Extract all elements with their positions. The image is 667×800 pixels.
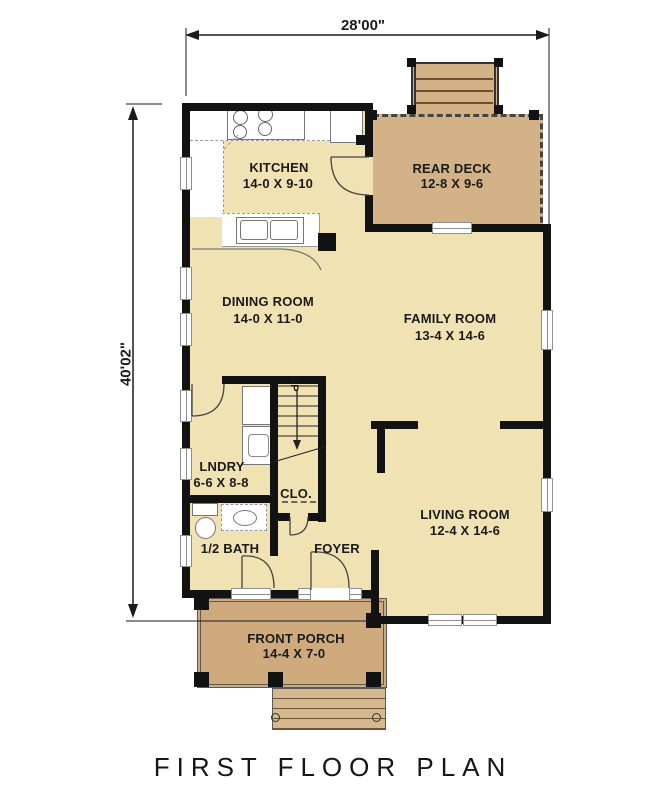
arrowhead-icon — [185, 30, 199, 40]
wall — [500, 421, 551, 429]
arrowhead-icon — [128, 604, 138, 618]
deck-stair-post — [407, 58, 416, 67]
stove-burner — [233, 110, 248, 125]
wall-stub — [318, 233, 336, 251]
wall — [371, 421, 418, 429]
window — [463, 614, 497, 626]
step-newel-left — [271, 713, 280, 722]
wall — [377, 429, 385, 473]
closet-shelf — [282, 501, 316, 505]
arrowhead-icon — [536, 30, 550, 40]
stairs-up-label: UP — [287, 376, 301, 392]
step-newel-right — [372, 713, 381, 722]
wall — [365, 103, 373, 157]
fridge-corner-wall — [356, 135, 366, 145]
sink-basin — [270, 220, 298, 240]
laundry-size: 6-6 X 8-8 — [193, 476, 248, 490]
deck-stair-post — [407, 105, 416, 114]
window — [231, 588, 271, 600]
living-room-size: 12-4 X 14-6 — [430, 524, 500, 538]
bath-sink — [233, 510, 257, 526]
stove-burner — [258, 122, 272, 136]
arrowhead-icon — [128, 106, 138, 120]
porch-steps — [272, 688, 386, 730]
closet-label: CLO. — [280, 487, 312, 501]
plan-title: FIRST FLOOR PLAN — [154, 752, 513, 783]
front-porch-label: FRONT PORCH — [247, 632, 345, 646]
dimension-width-label: 28'00" — [341, 17, 385, 34]
dimension-height-label: 40'02" — [118, 342, 135, 386]
kitchen-label: KITCHEN — [249, 161, 308, 175]
laundry-label: LNDRY — [199, 460, 244, 474]
wall — [371, 550, 379, 624]
window — [541, 310, 553, 350]
wall — [182, 103, 373, 111]
window — [180, 157, 192, 190]
window — [180, 267, 192, 300]
dining-room-label: DINING ROOM — [222, 295, 314, 309]
window — [180, 535, 192, 567]
toilet-bowl — [195, 517, 216, 539]
front-door-sidelight — [298, 588, 311, 600]
front-porch-size: 14-4 X 7-0 — [263, 647, 326, 661]
front-door-opening — [311, 588, 349, 600]
kitchen-size: 14-0 X 9-10 — [243, 177, 313, 191]
porch-post — [366, 672, 381, 687]
porch-post — [268, 672, 283, 687]
wall — [318, 376, 326, 522]
rear-deck-label: REAR DECK — [412, 162, 491, 176]
living-room-label: LIVING ROOM — [420, 508, 510, 522]
wall — [182, 495, 278, 503]
foyer-label: FOYER — [314, 542, 360, 556]
wall — [278, 513, 290, 521]
dining-room-size: 14-0 X 11-0 — [233, 312, 302, 326]
stove-burner — [233, 125, 247, 139]
wall — [270, 376, 278, 556]
window — [180, 448, 192, 480]
deck-stair-post — [494, 105, 503, 114]
window — [541, 478, 553, 512]
family-room-size: 13-4 X 14-6 — [415, 329, 485, 343]
sink-basin — [240, 220, 268, 240]
half-bath-label: 1/2 BATH — [201, 542, 259, 556]
first-floor-plan: 28'00" 40'02" KITCHEN 14-0 X 9-10 REAR D… — [0, 0, 667, 800]
porch-post — [194, 672, 209, 687]
kitchen-counter-left — [190, 141, 224, 217]
window — [428, 614, 462, 626]
dryer-drum — [248, 434, 269, 457]
deck-stairs — [411, 62, 499, 114]
deck-stair-post — [494, 58, 503, 67]
deck-post — [529, 110, 539, 120]
window — [180, 390, 192, 422]
toilet-tank — [192, 503, 218, 516]
deck-door — [432, 222, 472, 234]
wall — [308, 513, 326, 521]
rear-deck-size: 12-8 X 9-6 — [421, 177, 484, 191]
front-door-sidelight — [349, 588, 362, 600]
family-room-label: FAMILY ROOM — [404, 312, 497, 326]
window — [180, 313, 192, 346]
porch-post — [194, 596, 209, 610]
